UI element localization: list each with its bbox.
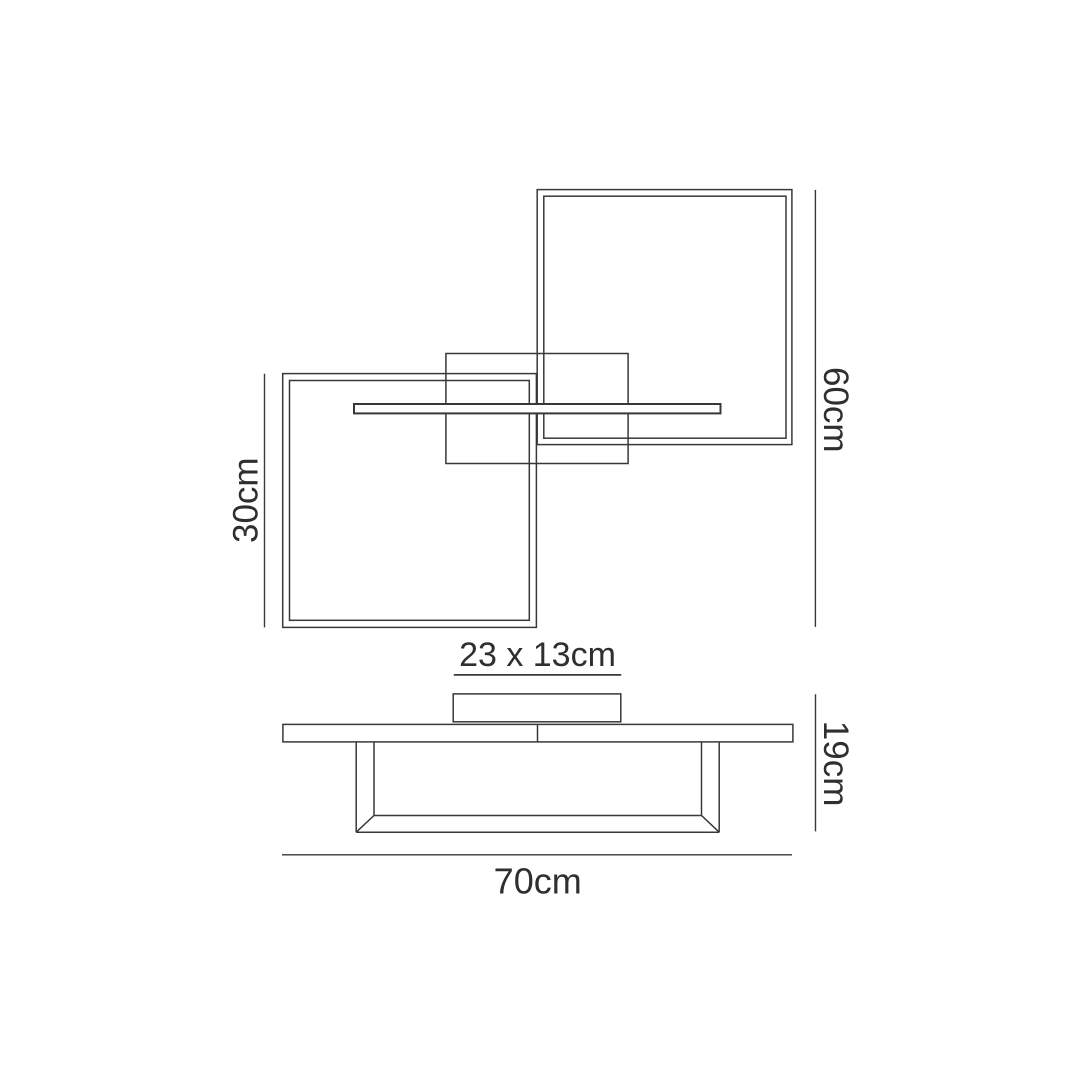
svg-text:60cm: 60cm <box>816 367 855 453</box>
svg-text:70cm: 70cm <box>494 861 582 902</box>
svg-text:19cm: 19cm <box>816 721 855 807</box>
svg-text:23 x 13cm: 23 x 13cm <box>459 636 616 674</box>
svg-text:30cm: 30cm <box>226 457 265 543</box>
